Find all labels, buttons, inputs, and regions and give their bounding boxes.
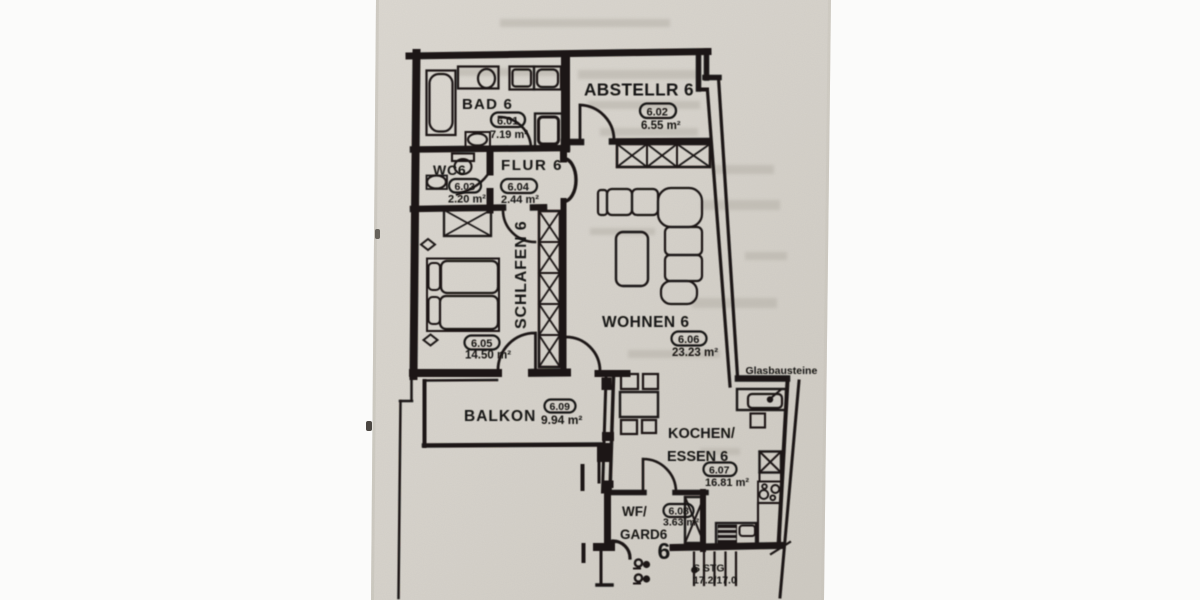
- svg-text:3.63 m²: 3.63 m²: [663, 517, 700, 529]
- svg-text:6: 6: [658, 538, 671, 564]
- svg-text:9.94 m²: 9.94 m²: [541, 413, 582, 427]
- svg-text:6.55 m²: 6.55 m²: [641, 120, 681, 132]
- svg-text:6.07: 6.07: [709, 465, 730, 477]
- svg-text:16.81 m²: 16.81 m²: [705, 477, 749, 489]
- svg-text:WF/: WF/: [622, 504, 647, 519]
- svg-text:6.06: 6.06: [678, 334, 699, 346]
- svg-text:7.19 m²: 7.19 m²: [490, 129, 528, 141]
- svg-text:BAD 6: BAD 6: [462, 96, 513, 113]
- svg-text:6.02: 6.02: [647, 107, 668, 119]
- svg-text:6.05: 6.05: [471, 338, 492, 350]
- svg-text:Glasbausteine: Glasbausteine: [746, 365, 818, 377]
- svg-text:6.01: 6.01: [497, 116, 518, 128]
- svg-text:S STG: S STG: [693, 563, 725, 575]
- svg-text:WOHNEN 6: WOHNEN 6: [602, 314, 690, 331]
- svg-text:17.2/17.0: 17.2/17.0: [693, 575, 737, 587]
- svg-text:2.44 m²: 2.44 m²: [501, 194, 539, 206]
- svg-text:14.50 m²: 14.50 m²: [465, 350, 511, 362]
- svg-text:KOCHEN/: KOCHEN/: [668, 426, 735, 442]
- svg-text:6.09: 6.09: [550, 401, 571, 413]
- svg-text:23.23 m²: 23.23 m²: [672, 347, 718, 359]
- svg-text:FLUR 6: FLUR 6: [501, 157, 563, 174]
- svg-text:BALKON: BALKON: [464, 408, 536, 425]
- svg-text:WC6: WC6: [433, 162, 467, 178]
- svg-text:2.20 m²: 2.20 m²: [448, 194, 486, 206]
- svg-text:ABSTELLR 6: ABSTELLR 6: [584, 80, 694, 100]
- svg-text:6.04: 6.04: [508, 182, 530, 194]
- svg-text:6.03: 6.03: [455, 181, 476, 193]
- svg-text:SCHLAFEN 6: SCHLAFEN 6: [513, 221, 530, 329]
